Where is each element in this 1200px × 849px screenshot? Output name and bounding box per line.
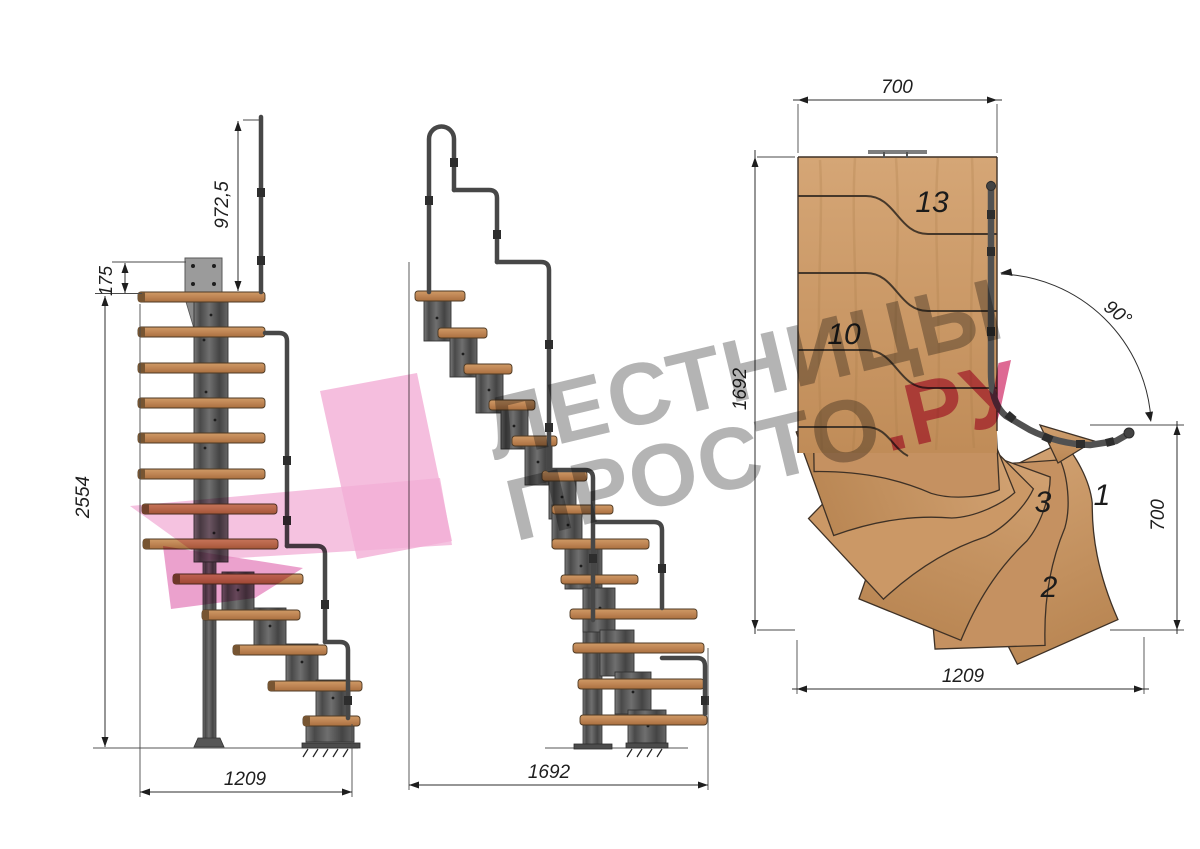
upper-flight-block — [798, 157, 997, 456]
tread-number-2: 2 — [1040, 571, 1058, 604]
dim-plan-turn-angle: 90° — [1100, 297, 1136, 331]
dim-plan-top-width: 700 — [881, 77, 913, 98]
staircase-technical-drawing: 972,5 175 2554 1209 — [0, 0, 1200, 849]
front-handrail — [429, 127, 705, 715]
dim-side-rail-height: 972,5 — [212, 181, 233, 229]
tread-number-3: 3 — [1035, 486, 1052, 519]
side-view: 972,5 175 2554 1209 — [73, 117, 362, 797]
dim-plan-right-width: 700 — [1148, 499, 1169, 531]
dim-plan-bottom-length: 1209 — [942, 666, 985, 687]
ground-hatch — [303, 749, 348, 757]
dim-side-run-length: 1209 — [224, 769, 267, 790]
tread-number-13: 13 — [915, 186, 949, 219]
dim-plan-left-length: 1692 — [730, 367, 751, 410]
tread-number-1: 1 — [1094, 479, 1111, 512]
rail-top-fitting — [987, 182, 996, 191]
leg-foot — [194, 738, 224, 747]
base-plate — [302, 743, 360, 748]
dim-front-run-length: 1692 — [528, 762, 571, 783]
dim-side-top-offset: 175 — [96, 265, 116, 296]
ground-hatch — [627, 749, 662, 757]
rail-end-fitting — [1124, 428, 1134, 438]
base-plate-left — [574, 744, 612, 749]
base-plate-right — [626, 743, 668, 748]
dim-side-total-height: 2554 — [73, 476, 94, 519]
drawing-canvas: 972,5 175 2554 1209 — [0, 0, 1200, 849]
mounting-plate — [185, 258, 222, 292]
front-view: 1692 — [409, 127, 708, 791]
tread-number-10: 10 — [827, 318, 861, 351]
plan-view: 13 10 3 1 2 700 1692 90 — [730, 77, 1184, 694]
angle-arc — [1001, 274, 1151, 420]
